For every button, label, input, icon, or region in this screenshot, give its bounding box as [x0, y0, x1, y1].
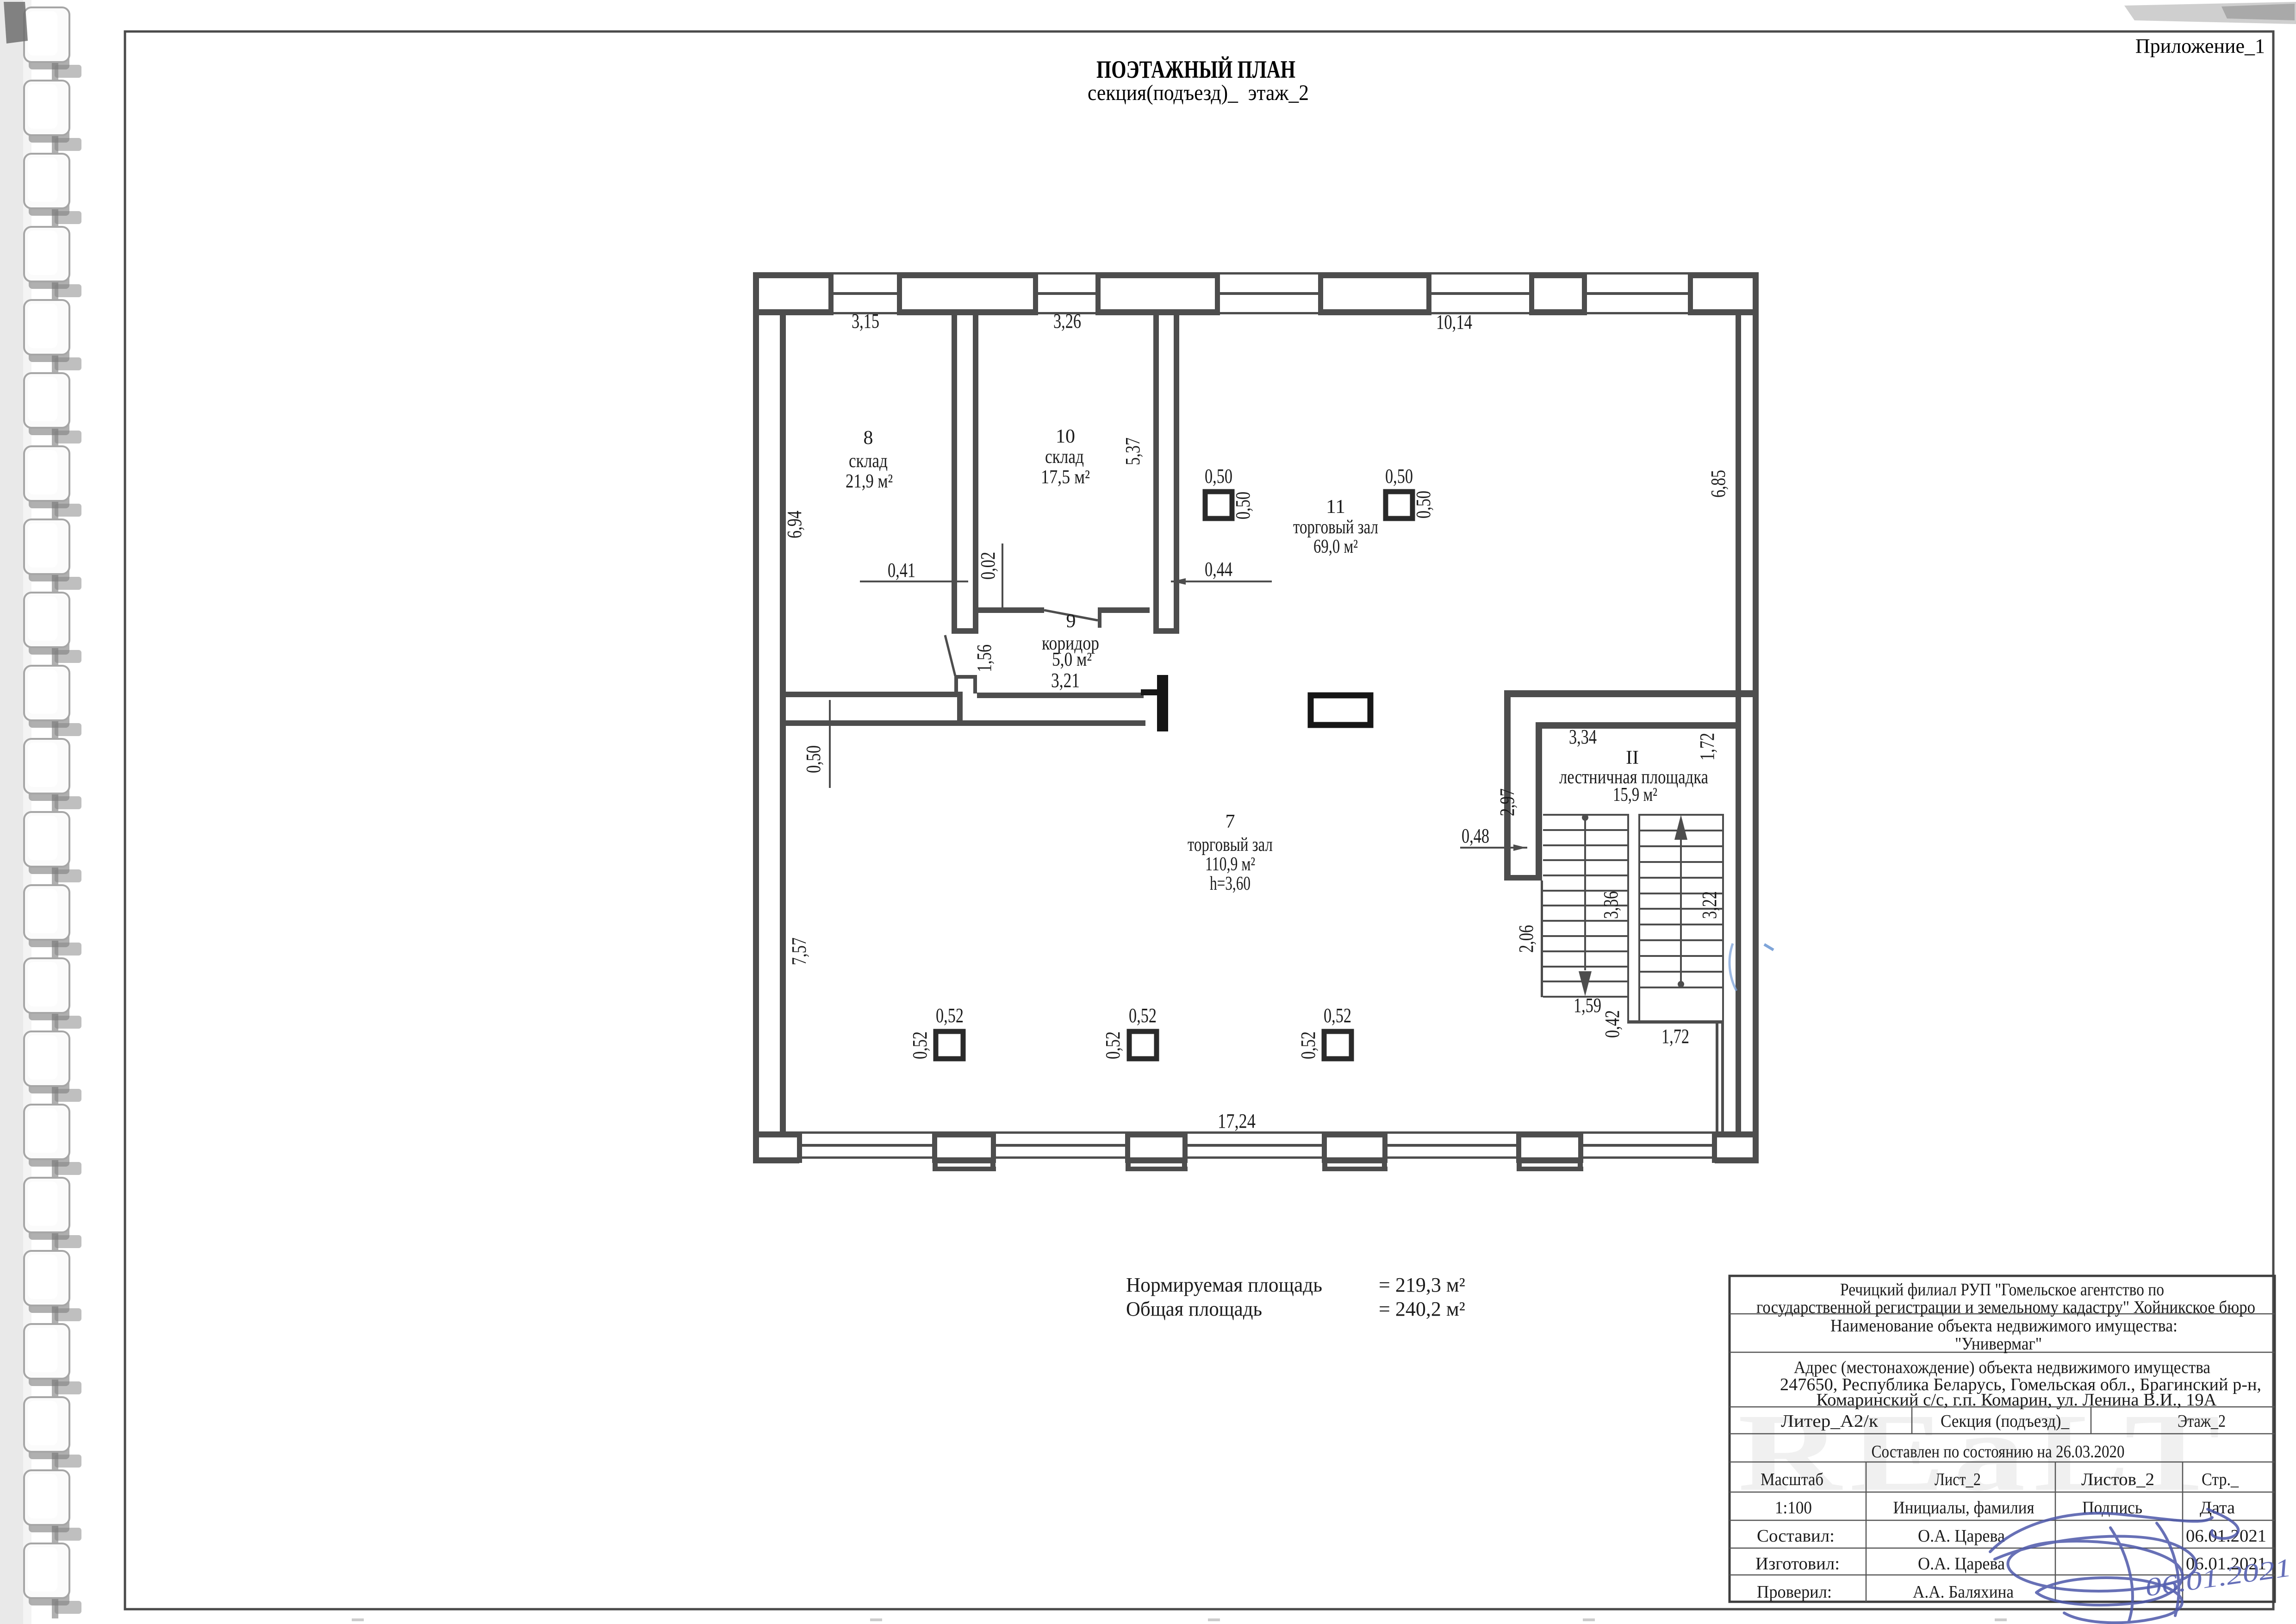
- svg-text:А.А. Баляхина: А.А. Баляхина: [1913, 1582, 2014, 1602]
- svg-text:Секция (подъезд)_: Секция (подъезд)_: [1941, 1412, 2070, 1431]
- svg-text:0,50: 0,50: [1385, 465, 1413, 487]
- svg-text:Составлен по состоянию на 26.0: Составлен по состоянию на 26.03.2020: [1872, 1442, 2125, 1462]
- svg-text:Адрес (местонахождение) объект: Адрес (местонахождение) объекта недвижим…: [1794, 1358, 2210, 1377]
- svg-text:О.А. Царева: О.А. Царева: [1918, 1526, 2005, 1546]
- svg-text:3,21: 3,21: [1051, 669, 1080, 692]
- svg-text:0,50: 0,50: [1205, 465, 1232, 487]
- svg-text:21,9 м²: 21,9 м²: [846, 471, 893, 492]
- svg-text:Комаринский с/с, г.п. Комарин,: Комаринский с/с, г.п. Комарин, ул. Ленин…: [1817, 1390, 2217, 1410]
- svg-text:склад: склад: [849, 450, 888, 472]
- svg-text:II: II: [1626, 747, 1639, 768]
- svg-text:69,0 м²: 69,0 м²: [1313, 536, 1358, 557]
- svg-text:1,59: 1,59: [1574, 994, 1601, 1017]
- svg-text:Стр._: Стр._: [2202, 1470, 2239, 1489]
- svg-text:Изготовил:: Изготовил:: [1755, 1554, 1840, 1574]
- svg-text:17,5 м²: 17,5 м²: [1041, 467, 1090, 488]
- svg-text:Лист_2: Лист_2: [1935, 1470, 1981, 1489]
- svg-text:9: 9: [1066, 611, 1076, 632]
- svg-text:8: 8: [864, 427, 873, 449]
- svg-text:Нормируемая площадь: Нормируемая площадь: [1126, 1274, 1322, 1296]
- svg-text:1:100: 1:100: [1775, 1498, 1812, 1518]
- svg-text:3,34: 3,34: [1569, 725, 1597, 748]
- svg-text:5,37: 5,37: [1121, 437, 1144, 465]
- svg-text:Общая площадь: Общая площадь: [1126, 1298, 1262, 1320]
- svg-text:6,94: 6,94: [783, 511, 806, 538]
- svg-text:О.А. Царева: О.А. Царева: [1918, 1554, 2005, 1574]
- svg-text:0,50: 0,50: [1412, 491, 1435, 518]
- svg-text:"Универмаг": "Универмаг": [1955, 1334, 2042, 1354]
- svg-text:17,24: 17,24: [1218, 1110, 1256, 1132]
- svg-text:= 240,2 м²: = 240,2 м²: [1379, 1298, 1465, 1320]
- svg-text:Составил:: Составил:: [1757, 1526, 1835, 1546]
- svg-text:110,9 м²: 110,9 м²: [1205, 854, 1255, 875]
- svg-text:0,48: 0,48: [1462, 824, 1489, 847]
- svg-text:1,72: 1,72: [1661, 1025, 1689, 1048]
- svg-text:2,97: 2,97: [1496, 788, 1518, 816]
- svg-text:государственной регистрации и: государственной регистрации и земельному…: [1756, 1298, 2255, 1317]
- svg-text:1,56: 1,56: [973, 644, 996, 672]
- svg-text:06.01.2021: 06.01.2021: [2186, 1526, 2266, 1546]
- svg-text:11: 11: [1326, 496, 1345, 518]
- svg-text:0,50: 0,50: [802, 745, 825, 773]
- svg-text:0,42: 0,42: [1601, 1010, 1624, 1038]
- svg-text:0,52: 0,52: [1324, 1004, 1351, 1027]
- svg-text:секция(подъезд)_ этаж_2: секция(подъезд)_ этаж_2: [1088, 81, 1309, 105]
- svg-text:торговый зал: торговый зал: [1293, 517, 1378, 538]
- svg-text:15,9 м²: 15,9 м²: [1613, 784, 1657, 806]
- svg-text:3,36: 3,36: [1599, 891, 1622, 919]
- svg-text:0,52: 0,52: [1297, 1031, 1319, 1059]
- svg-text:0,52: 0,52: [908, 1031, 931, 1059]
- svg-text:3,26: 3,26: [1053, 310, 1081, 332]
- svg-text:торговый зал: торговый зал: [1188, 834, 1273, 856]
- svg-text:0,44: 0,44: [1205, 558, 1232, 581]
- svg-text:7,57: 7,57: [788, 937, 810, 965]
- svg-text:10: 10: [1056, 426, 1075, 447]
- svg-text:1,72: 1,72: [1696, 733, 1718, 761]
- svg-text:5,0 м²: 5,0 м²: [1052, 649, 1092, 670]
- svg-text:Проверил:: Проверил:: [1757, 1582, 1832, 1602]
- svg-text:3,22: 3,22: [1698, 891, 1721, 919]
- svg-text:Литер_А2/к: Литер_А2/к: [1781, 1412, 1879, 1431]
- svg-text:Этаж_2: Этаж_2: [2178, 1412, 2226, 1431]
- svg-text:Листов_2: Листов_2: [2081, 1470, 2154, 1489]
- svg-text:0,52: 0,52: [1101, 1031, 1124, 1059]
- svg-text:Масштаб: Масштаб: [1761, 1470, 1823, 1489]
- svg-text:ПОЭТАЖНЫЙ ПЛАН: ПОЭТАЖНЫЙ ПЛАН: [1096, 56, 1295, 83]
- svg-text:6,85: 6,85: [1707, 470, 1730, 498]
- svg-text:7: 7: [1226, 811, 1235, 832]
- svg-text:0,52: 0,52: [1129, 1004, 1157, 1027]
- svg-text:10,14: 10,14: [1436, 311, 1472, 333]
- svg-text:Инициалы, фамилия: Инициалы, фамилия: [1893, 1498, 2035, 1518]
- svg-text:Наименование объекта недвижимо: Наименование объекта недвижимого имущест…: [1830, 1316, 2178, 1336]
- svg-text:Речицкий филиал РУП "Гомельско: Речицкий филиал РУП "Гомельское агентств…: [1840, 1280, 2164, 1299]
- svg-text:0,02: 0,02: [977, 552, 999, 580]
- svg-text:склад: склад: [1045, 446, 1084, 468]
- svg-text:0,50: 0,50: [1232, 492, 1254, 519]
- svg-text:0,41: 0,41: [888, 559, 915, 581]
- svg-text:3,15: 3,15: [852, 310, 879, 332]
- svg-text:0,52: 0,52: [936, 1004, 964, 1027]
- svg-text:2,06: 2,06: [1515, 925, 1537, 953]
- svg-text:Приложение_1: Приложение_1: [2135, 35, 2265, 57]
- svg-text:h=3,60: h=3,60: [1210, 873, 1251, 894]
- svg-text:= 219,3 м²: = 219,3 м²: [1379, 1274, 1465, 1296]
